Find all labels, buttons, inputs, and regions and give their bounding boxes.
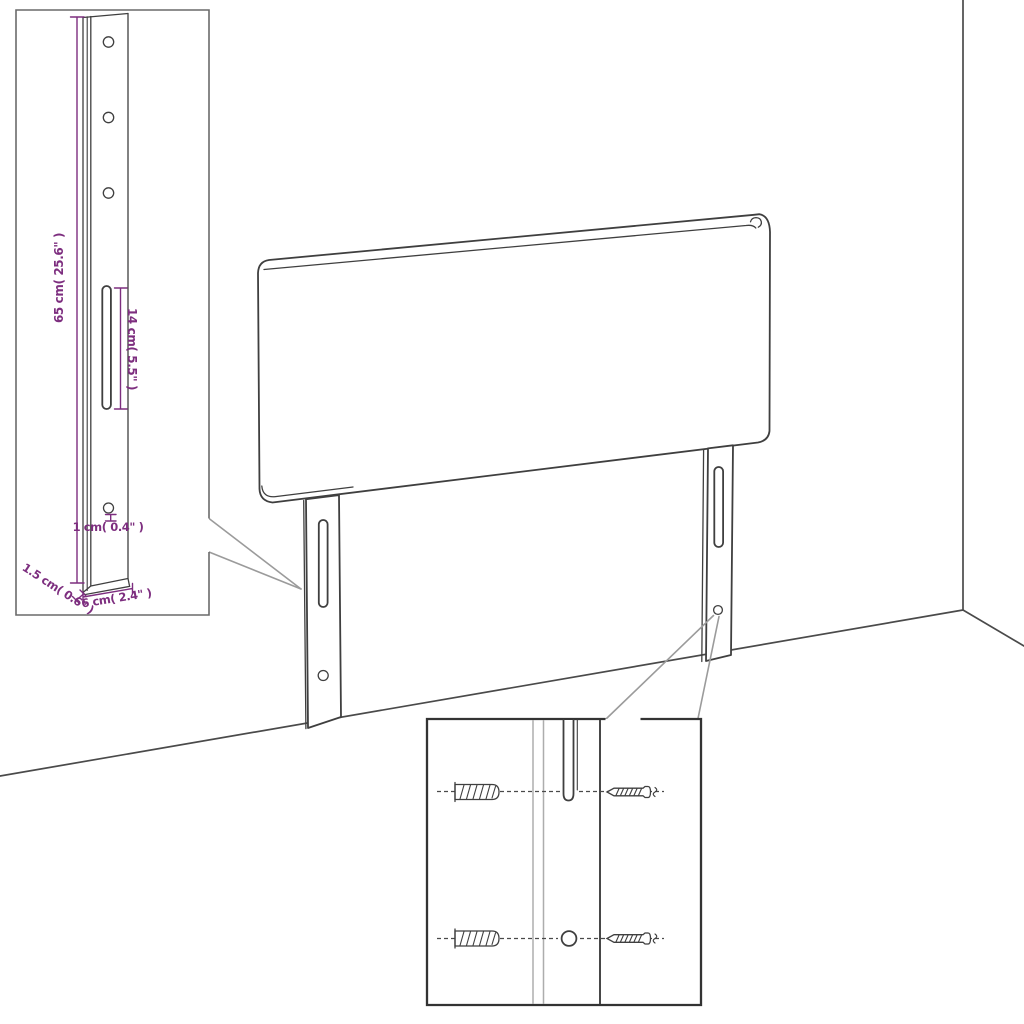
headboard-panel [258,214,770,502]
hole-dimension-label: 1 cm( 0.4" ) [73,520,144,534]
magnified-hole [562,931,577,946]
callout-wedge-right-left-line [606,616,714,720]
callout-wedge-left-upper-line [209,519,301,590]
right-leg-slot [714,467,723,547]
right-leg-side-line [702,450,704,662]
wall-plug-top-icon [455,783,499,802]
leg-detail-slot [102,286,111,409]
slot-dimension-label: 14 cm( 5.5" ) [125,308,139,390]
left-mounting-leg [304,495,341,728]
wall-plug-bottom-icon [455,929,499,948]
screw-top-icon [607,787,657,798]
leg-detail-inset: 65 cm( 25.6" ) 14 cm( 5.5" ) 1 cm( 0.4" … [16,10,209,617]
magnified-slot [564,720,574,801]
right-mounting-leg [702,445,733,661]
screw-bottom-icon [607,933,657,944]
callout-wedge-left [209,519,301,590]
height-dimension-label: 65 cm( 25.6" ) [52,233,66,323]
right-leg-hole [714,606,723,615]
mounting-detail-inset [427,719,701,1005]
headboard-panel-outline [258,214,770,502]
callout-wedge-left-lower-line [209,552,301,589]
floor-line-right [963,610,1024,646]
left-leg-slot [319,520,328,607]
headboard-assembly-diagram: 65 cm( 25.6" ) 14 cm( 5.5" ) 1 cm( 0.4" … [0,0,1024,1024]
left-leg-hole [318,671,328,681]
assembly-diagram-page: 65 cm( 25.6" ) 14 cm( 5.5" ) 1 cm( 0.4" … [0,0,1024,1024]
